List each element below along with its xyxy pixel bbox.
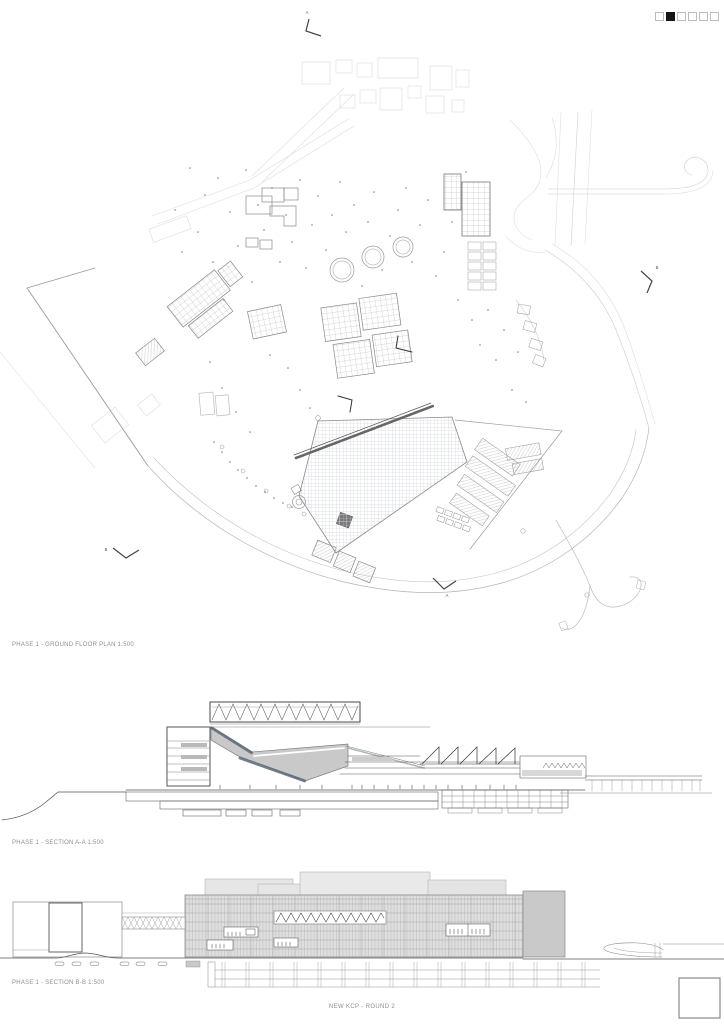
section-aa-auditorium-mass [211, 727, 425, 781]
section-b-label: PHASE 1 - SECTION B-B 1:500 [12, 980, 104, 986]
plan-context [0, 58, 713, 468]
page-indicator-square [699, 12, 708, 21]
marker-a-bottom-label: A [446, 593, 449, 598]
plan-label: PHASE 1 - GROUND FLOOR PLAN 1:500 [12, 642, 134, 648]
presentation-sheet: A B A B [0, 0, 724, 1024]
section-bb-cars [55, 961, 200, 967]
building-cluster-north [246, 188, 298, 249]
section-aa-east-wing [340, 747, 702, 791]
section-aa-basement [126, 790, 568, 816]
page-indicator-square [655, 12, 664, 21]
section-bb-drawing [0, 872, 724, 987]
plan-plaza [291, 403, 467, 553]
section-aa-left-block [167, 727, 210, 786]
sheet-title: NEW KCP - ROUND 2 [0, 1004, 724, 1010]
site-plan [0, 58, 713, 631]
page-indicator-square [688, 12, 697, 21]
building-cluster-west [167, 259, 256, 342]
section-aa-figures [220, 785, 516, 789]
marker-a-top: A [306, 10, 321, 36]
marker-b-left: B [105, 547, 139, 558]
curved-row-east [516, 300, 546, 367]
marker-b-right: B [641, 265, 659, 293]
section-bb-truss-bridge [122, 913, 185, 929]
section-bb-basement [208, 962, 600, 987]
marker-a-top-label: A [306, 10, 309, 15]
page-indicator-square [666, 12, 675, 21]
section-aa-truss-roof [210, 702, 430, 727]
page-indicator-square [710, 12, 719, 21]
building-strips-east [444, 174, 490, 236]
section-a-label: PHASE 1 - SECTION A-A 1:500 [12, 840, 104, 846]
corner-box [679, 978, 720, 1018]
building-cluster-center [320, 292, 413, 379]
marker-b-left-label: B [105, 547, 108, 552]
section-bb-ramp [604, 943, 724, 957]
marker-b-right-label: B [656, 265, 659, 270]
page-indicator [655, 12, 719, 21]
sheet-drawing: A B A B [0, 0, 724, 1024]
stall-rows-east [468, 242, 496, 290]
page-indicator-square [677, 12, 686, 21]
section-bb-left-tower [13, 902, 122, 957]
section-bb-elevation [185, 891, 565, 957]
section-aa-drawing [2, 702, 712, 820]
